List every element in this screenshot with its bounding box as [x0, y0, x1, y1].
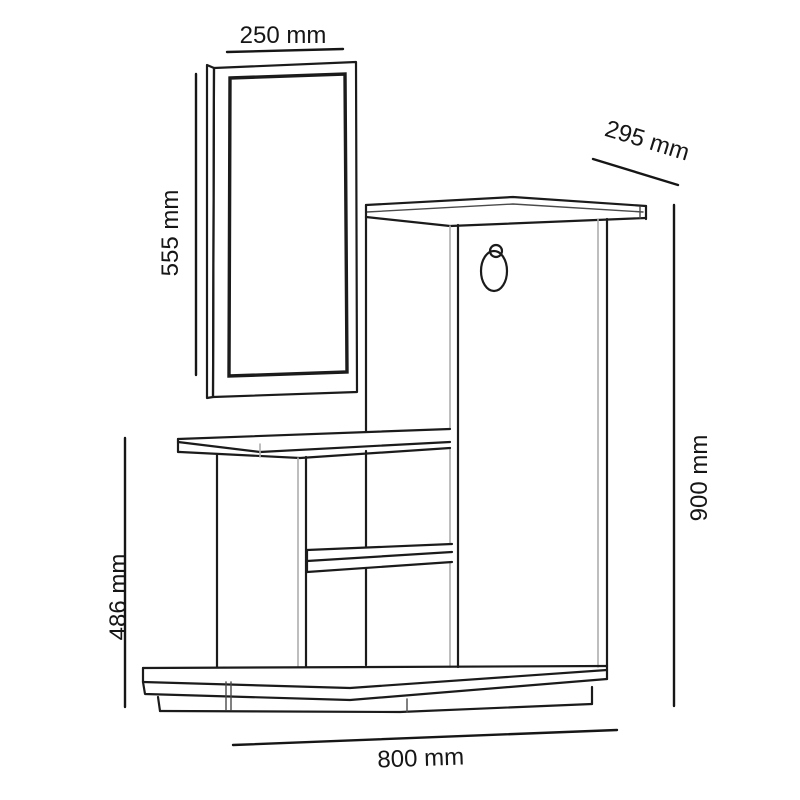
base-plinth — [143, 666, 607, 712]
plinth-left-cap — [158, 697, 160, 711]
dimension-label-cabinet-depth: 295 mm — [602, 115, 693, 166]
dimension-desk-height: 486 mm — [105, 438, 132, 707]
dimension-total-width: 800 mm — [233, 730, 617, 774]
mirror-glass-outline — [229, 74, 347, 376]
dimension-line-total-width — [233, 730, 617, 745]
dimension-line-mirror-width — [227, 49, 343, 52]
base-band-bottom-edge — [143, 679, 607, 700]
shelf-front-edge — [307, 552, 452, 561]
shelf-back-edge — [307, 544, 452, 550]
desk-top-back-edge — [178, 429, 450, 439]
dimension-mirror-width: 250 mm — [227, 22, 343, 52]
cabinet — [366, 197, 646, 667]
base-top-back-edge — [143, 666, 607, 668]
dimension-mirror-height: 555 mm — [157, 74, 196, 375]
wall-mirror — [207, 62, 357, 398]
dimension-cabinet-depth: 295 mm — [593, 115, 693, 185]
plinth-bottom-edge — [160, 704, 592, 712]
dimension-label-total-height: 900 mm — [686, 435, 713, 522]
mirror-frame-outline — [213, 62, 357, 397]
dimension-total-height: 900 mm — [674, 205, 713, 706]
shelf-bottom-edge — [307, 562, 452, 572]
furniture-dimension-diagram: 250 mm 555 mm 295 mm 900 mm 486 mm 800 m… — [0, 0, 800, 800]
desk-section — [178, 429, 450, 667]
dimension-label-mirror-width: 250 mm — [240, 22, 327, 49]
dimension-label-desk-height: 486 mm — [105, 554, 132, 641]
desk-top-left-cap — [178, 439, 180, 452]
cabinet-top-panel-thickness-line — [367, 204, 643, 212]
door-handle — [481, 245, 507, 291]
dimension-line-cabinet-depth — [593, 159, 678, 185]
dimension-label-total-width: 800 mm — [377, 743, 465, 773]
dimension-label-mirror-height: 555 mm — [157, 190, 184, 277]
middle-shelf — [307, 544, 452, 572]
technical-drawing-canvas: 250 mm 555 mm 295 mm 900 mm 486 mm 800 m… — [0, 0, 800, 800]
cabinet-top-panel-front-edge — [366, 217, 646, 226]
